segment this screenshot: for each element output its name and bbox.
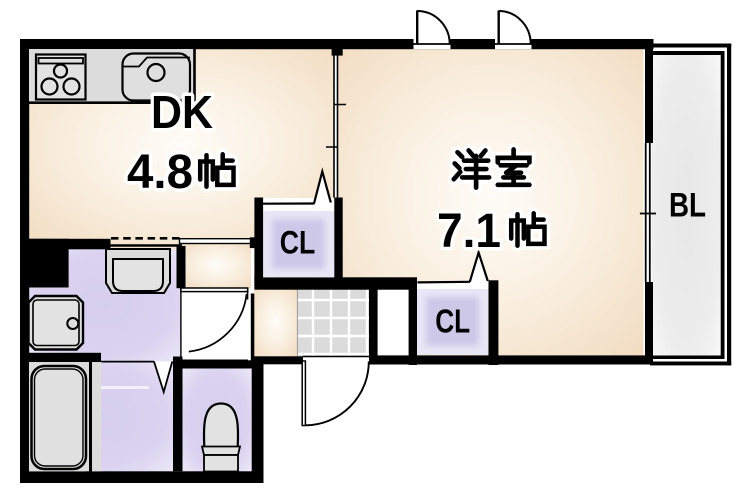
svg-text:7.1: 7.1 bbox=[437, 205, 501, 258]
svg-text:BL: BL bbox=[669, 187, 706, 225]
svg-text:DK: DK bbox=[151, 86, 213, 138]
svg-text:CL: CL bbox=[280, 224, 316, 260]
svg-text:CL: CL bbox=[435, 303, 470, 340]
svg-text:4.8: 4.8 bbox=[127, 146, 193, 199]
